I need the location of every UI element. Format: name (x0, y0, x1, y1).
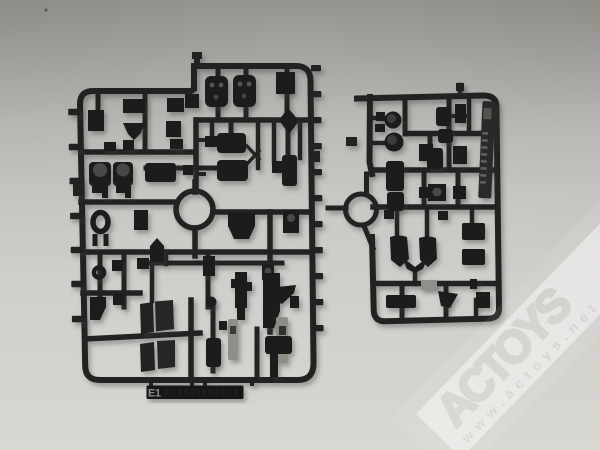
svg-text:E1: E1 (148, 388, 161, 400)
